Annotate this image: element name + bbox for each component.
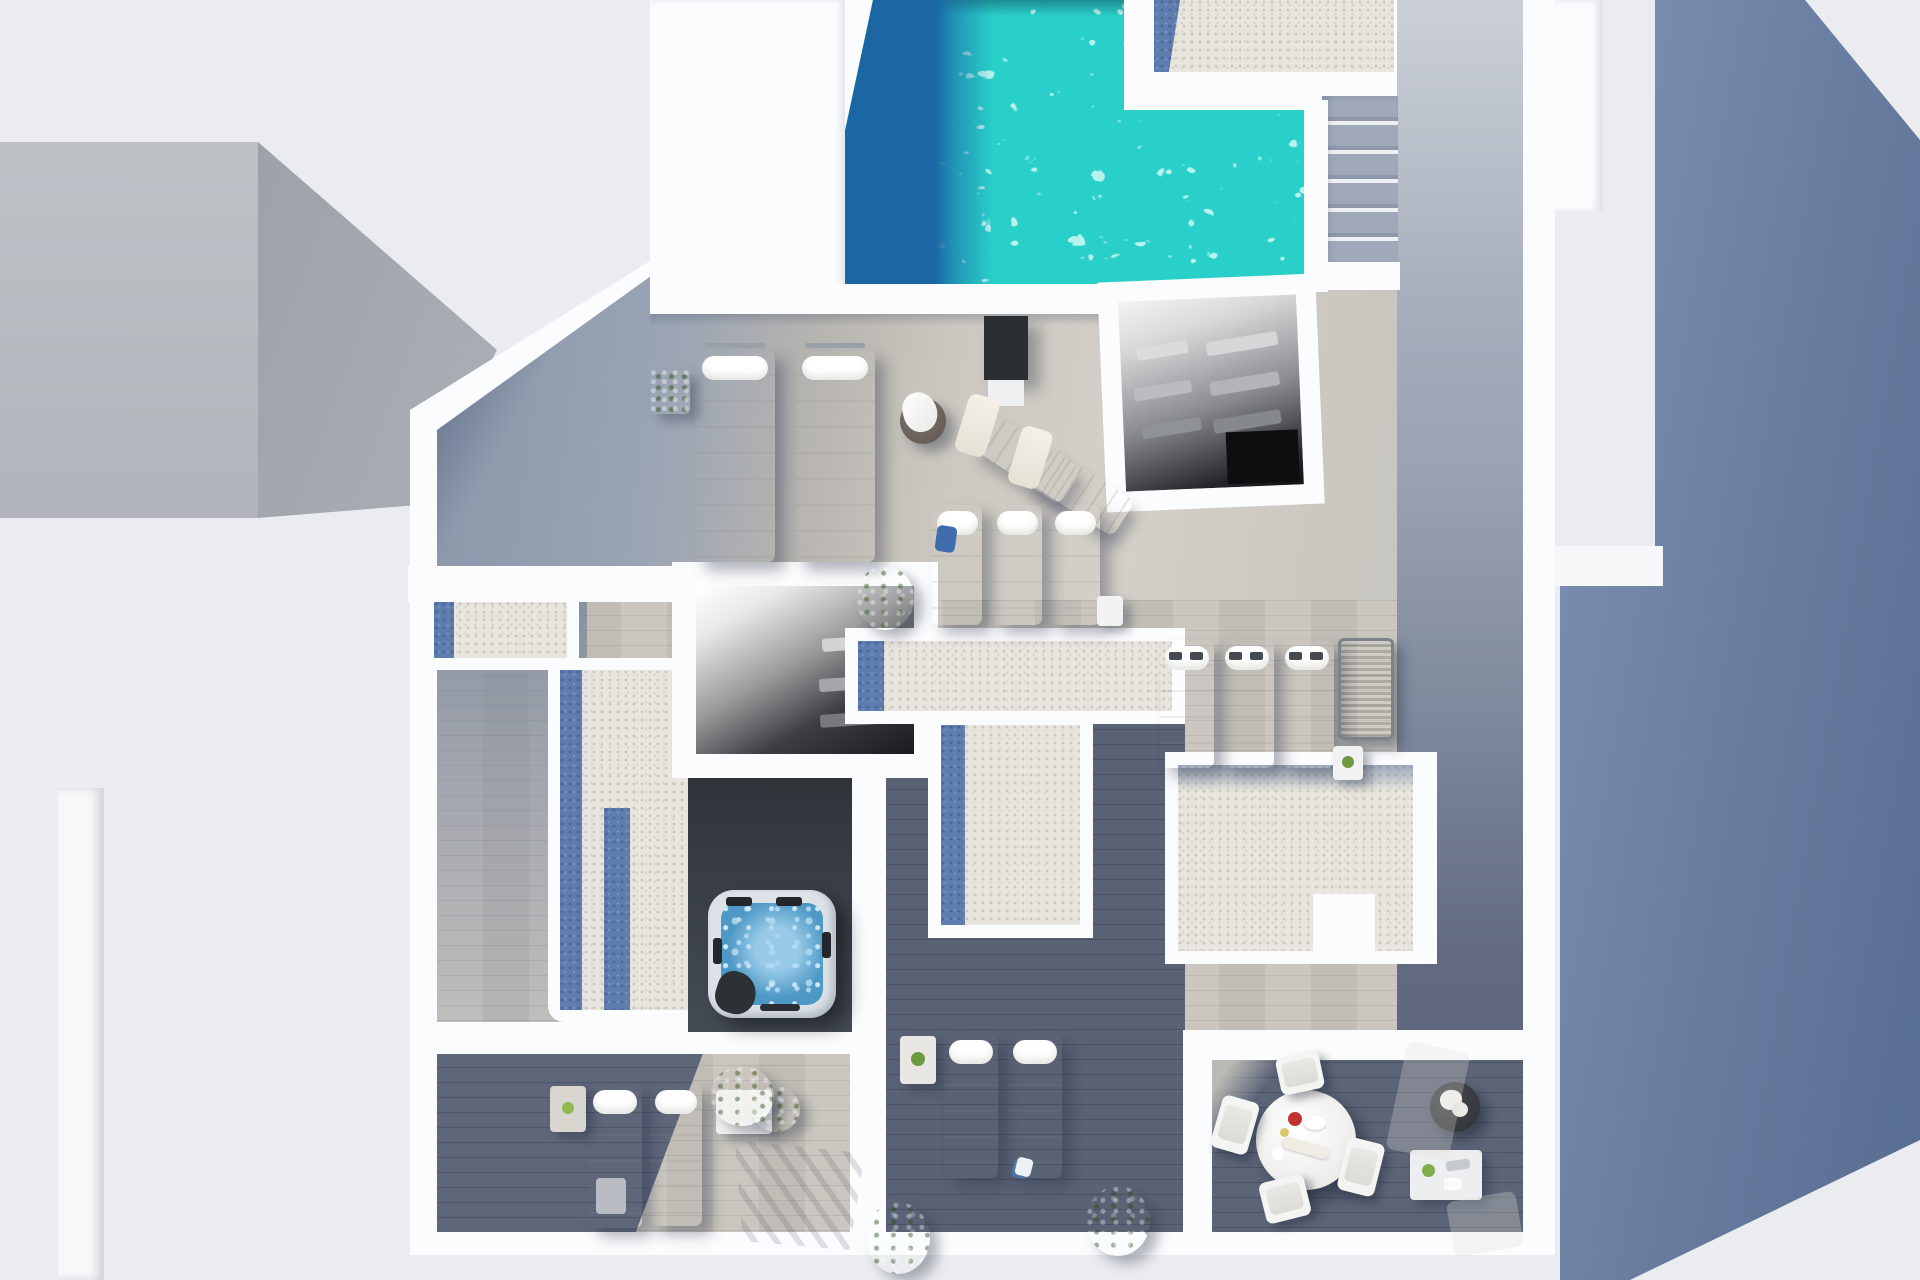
sun-lounger-bc-1 bbox=[944, 1034, 998, 1178]
stairwell-east-beam-1 bbox=[1135, 340, 1188, 361]
plant-bottomcenter-1 bbox=[866, 1202, 930, 1274]
pool-east-wall bbox=[1304, 100, 1328, 292]
rooftop-render bbox=[0, 0, 1920, 1280]
gravel-t-wing-topshade bbox=[1178, 765, 1413, 791]
stairwell-east-beam-2 bbox=[1205, 331, 1278, 357]
white-item-on-table bbox=[1444, 1178, 1462, 1190]
gravel-t-roof-wing bbox=[1165, 752, 1437, 964]
sun-lounger-pool-1 bbox=[695, 350, 775, 562]
shrub-near-t-roof bbox=[856, 566, 914, 630]
stairwell-east-beam-3 bbox=[1133, 379, 1192, 401]
stairwell-east bbox=[1097, 274, 1324, 513]
hot-tub-headrest-3 bbox=[713, 938, 722, 964]
plant-bottomleft-2 bbox=[752, 1086, 800, 1132]
stairwell-east-dark-pit bbox=[1226, 429, 1300, 484]
outdoor-stairs bbox=[1322, 96, 1398, 268]
plant-bottomcenter-2 bbox=[1086, 1186, 1150, 1256]
pool-shower-panel bbox=[984, 316, 1028, 380]
sun-lounger-east-3 bbox=[1280, 640, 1334, 768]
chair-shadow-light-2 bbox=[1446, 1190, 1525, 1257]
stairwell-east-beam-4 bbox=[1209, 371, 1280, 396]
stairwell-east-beam-5 bbox=[1141, 417, 1202, 440]
sun-lounger-east-2 bbox=[1220, 640, 1274, 768]
green-apple-decor bbox=[562, 1102, 574, 1114]
sun-lounger-mid-2 bbox=[992, 505, 1042, 625]
bread-tray bbox=[1281, 1136, 1330, 1161]
white-cup bbox=[1272, 1148, 1284, 1160]
hot-tub bbox=[708, 890, 836, 1018]
bottomright-north-wall bbox=[1183, 1030, 1523, 1060]
side-table-bottomleft bbox=[550, 1086, 586, 1132]
pool-west-deck bbox=[650, 0, 845, 292]
gravel-l-top-shadowstrip bbox=[434, 602, 454, 658]
neighbor-building-block bbox=[0, 142, 258, 518]
gravel-l-stem-shadowstrip-2 bbox=[604, 808, 630, 1010]
hot-tub-headrest-1 bbox=[726, 897, 752, 906]
hot-tub-headrest-2 bbox=[776, 897, 802, 906]
sun-lounger-east-1 bbox=[1160, 640, 1214, 768]
gravel-t-wing-fill bbox=[1178, 765, 1413, 951]
sun-lounger-bl-2 bbox=[650, 1084, 702, 1226]
gray-item-on-table bbox=[1445, 1158, 1470, 1171]
sun-lounger-pool-2 bbox=[795, 350, 875, 562]
white-dish bbox=[1304, 1116, 1326, 1130]
gravel-t-bar-fill bbox=[858, 641, 1172, 711]
sun-lounger-mid-3 bbox=[1050, 505, 1100, 625]
gravel-t-roof-stem bbox=[928, 712, 1093, 938]
gravel-roof-north bbox=[1150, 0, 1394, 76]
side-table-east bbox=[1333, 746, 1363, 780]
plant-on-side-table-br bbox=[1422, 1164, 1435, 1177]
building-shadow-right bbox=[1555, 0, 1920, 1280]
gravel-t-stem-shadowstrip bbox=[941, 725, 965, 925]
stairs-landing-wall bbox=[1318, 262, 1400, 290]
neighbor-wall-mid bbox=[1545, 546, 1663, 586]
gravel-t-bar-shadowstrip bbox=[858, 641, 884, 711]
yellow-fruit bbox=[1280, 1128, 1289, 1137]
trellis-shadow bbox=[735, 1140, 865, 1250]
plant-on-side-table-east bbox=[1342, 756, 1354, 768]
planter-box-green bbox=[650, 370, 690, 414]
gray-mat-on-lounger bbox=[596, 1178, 626, 1214]
gravel-t-roof-bar bbox=[845, 628, 1185, 724]
side-table-mid bbox=[1097, 596, 1123, 626]
plant-on-side-table-bc bbox=[911, 1052, 925, 1066]
hot-tub-headrest-4 bbox=[822, 932, 831, 958]
side-table-bottomcenter bbox=[900, 1036, 936, 1084]
gravel-t-wing-notch bbox=[1313, 894, 1375, 964]
lower-roof-wall-left bbox=[58, 788, 104, 1280]
gravel-l-stem-shadowstrip-1 bbox=[560, 670, 582, 1010]
mesh-lounger bbox=[1338, 638, 1394, 740]
blue-towel bbox=[934, 525, 957, 554]
sun-lounger-bc-2 bbox=[1008, 1034, 1062, 1178]
hot-tub-jet-strip bbox=[760, 1004, 800, 1011]
bottom-divider-wall bbox=[1183, 1060, 1212, 1232]
red-bowl bbox=[1288, 1112, 1302, 1126]
sun-lounger-mid-1 bbox=[932, 505, 982, 625]
